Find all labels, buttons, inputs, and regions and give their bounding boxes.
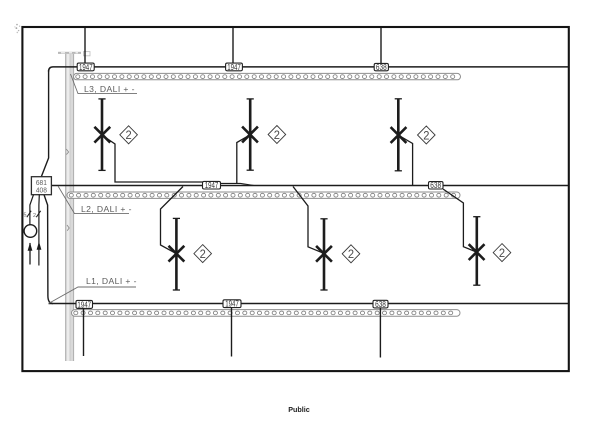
svg-text:2: 2 bbox=[126, 130, 132, 142]
svg-text:2: 2 bbox=[33, 213, 36, 219]
svg-text:1947: 1947 bbox=[205, 181, 219, 190]
svg-text:2: 2 bbox=[200, 249, 206, 261]
svg-text:1947: 1947 bbox=[79, 63, 93, 72]
svg-text:L1, DALI + -: L1, DALI + - bbox=[86, 276, 137, 286]
svg-text:L2, DALI + -: L2, DALI + - bbox=[81, 204, 132, 214]
svg-text:2: 2 bbox=[274, 130, 280, 142]
svg-text:2: 2 bbox=[423, 130, 429, 142]
svg-text:L3, DALI + -: L3, DALI + - bbox=[84, 84, 135, 94]
svg-text:2: 2 bbox=[499, 248, 505, 260]
svg-text:1947: 1947 bbox=[77, 300, 91, 309]
svg-text:638: 638 bbox=[376, 63, 387, 72]
svg-text:638: 638 bbox=[430, 181, 441, 190]
svg-text:1947: 1947 bbox=[227, 63, 241, 72]
svg-text:Public: Public bbox=[288, 405, 310, 414]
svg-text:2: 2 bbox=[348, 249, 354, 261]
svg-text:408: 408 bbox=[36, 186, 47, 195]
svg-text:5: 5 bbox=[24, 213, 27, 219]
